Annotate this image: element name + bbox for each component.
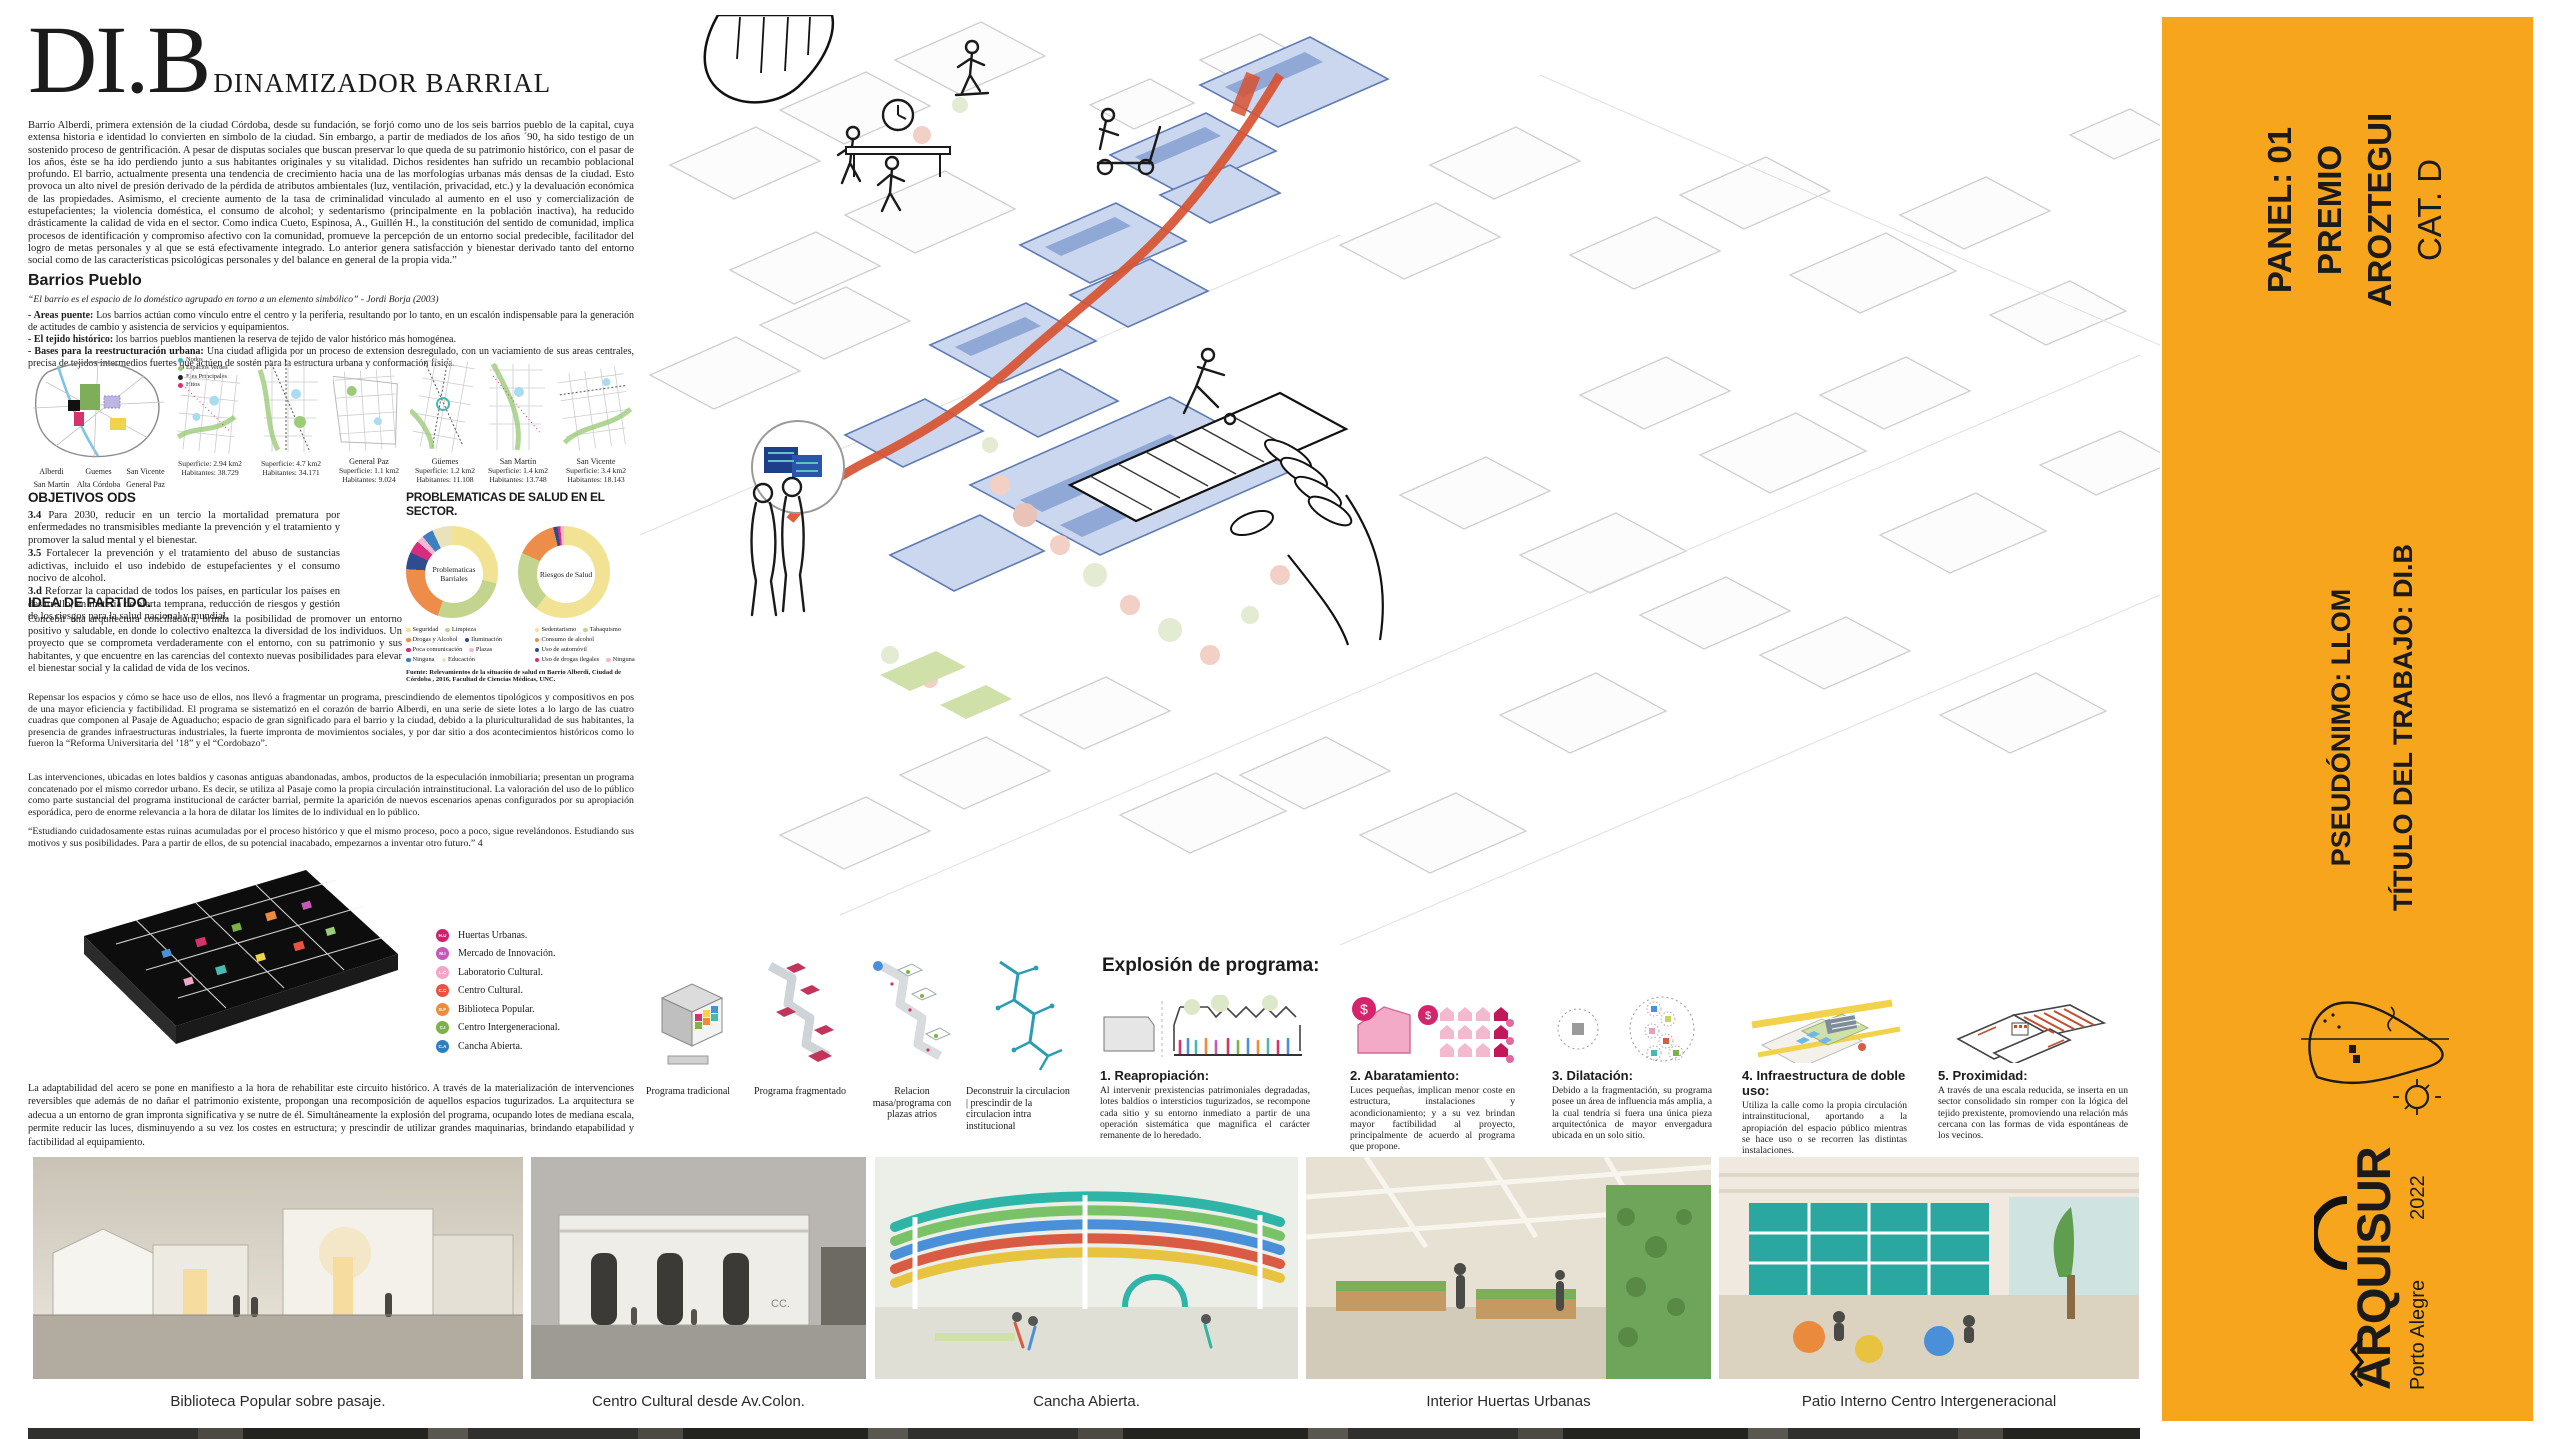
- district-map-thumb: General PazSuperficie: 1.1 km2Habitantes…: [333, 366, 405, 484]
- explosion-item: $ $ 2. Abaratamiento: Luces pequeñas, im…: [1350, 995, 1515, 1153]
- panel-number: PANEL: 01: [2255, 110, 2305, 310]
- svg-text:$: $: [1360, 1001, 1368, 1017]
- explosion-item-text: Utiliza la calle como la propia circulac…: [1742, 1100, 1907, 1156]
- premio-label: PREMIO: [2305, 110, 2355, 310]
- explosion-item-title: 3. Dilatación:: [1552, 1068, 1712, 1083]
- render-huertas: Interior Huertas Urbanas: [1306, 1157, 1711, 1410]
- diagram-programa-fragmentado: [752, 960, 852, 1072]
- program-legend: H.UHuertas Urbanas. M.IMercado de Innova…: [436, 926, 560, 1056]
- diagram-deconstruir-circulacion: [970, 958, 1070, 1074]
- district-names: Alberdi Guemes San Vicente San Martín Al…: [28, 465, 169, 491]
- district-map-thumb: Superficie: 4.7 km2Habitantes: 34.171: [256, 358, 326, 477]
- legend-badge: L.C: [436, 966, 449, 979]
- explosion-item: 5. Proximidad: A través de una escala re…: [1938, 995, 2128, 1141]
- photo-caption: Biblioteca Popular sobre pasaje.: [33, 1393, 523, 1410]
- bullet-text: Los barrios actúan como vínculo entre el…: [28, 310, 634, 333]
- legend-badge: H.U: [436, 929, 449, 942]
- district-map-thumb: San MartínSuperficie: 1.4 km2Habitantes:…: [483, 362, 553, 484]
- idea-paragraph-1: Concebir una arquitectura conciliadora, …: [28, 614, 402, 675]
- ods-heading: OBJETIVOS ODS: [28, 490, 340, 505]
- mountain-zigzag-icon: [2350, 1328, 2364, 1388]
- aroztegui-label: AROZTEGUI: [2355, 110, 2405, 310]
- explosion-item-text: Debido a la fragmentación, su programa p…: [1552, 1085, 1712, 1141]
- donut-charts: Problematicas Barriales Riesgos de Salud: [406, 526, 646, 618]
- barrios-pueblo-heading: Barrios Pueblo: [28, 272, 142, 290]
- diagram-plazas-atrios: [862, 960, 962, 1072]
- donut-center-label: Problematicas Barriales: [427, 565, 481, 583]
- masterplan-model-thumbnail: [66, 858, 406, 1088]
- axonometric-illustration: [640, 15, 2160, 953]
- explosion-item-title: 5. Proximidad:: [1938, 1068, 2128, 1083]
- legend-badge: C.A: [436, 1040, 449, 1053]
- render-cancha: Cancha Abierta.: [875, 1157, 1298, 1410]
- dilatacion-icon: [1552, 995, 1712, 1063]
- arch-icon: [2314, 1194, 2348, 1272]
- title-block: DI.B DINAMIZADOR BARRIAL: [28, 20, 551, 100]
- svg-text:$: $: [1425, 1010, 1431, 1022]
- photo-caption: Patio Interno Centro Intergeneracional: [1719, 1393, 2139, 1410]
- city-map-figure: [28, 358, 169, 460]
- titulo-label: TÍTULO DEL TRABAJO: DI.B: [2372, 530, 2434, 925]
- diagram-caption: Programa tradicional: [640, 1086, 736, 1098]
- donut-problematicas: Problematicas Barriales: [406, 526, 498, 618]
- page-title: DI.B: [28, 6, 209, 113]
- left-column: DI.B DINAMIZADOR BARRIAL Barrio Alberdi,…: [28, 20, 634, 1170]
- district-maps-row: Alberdi Guemes San Vicente San Martín Al…: [28, 352, 634, 492]
- intro-paragraph: Barrio Alberdi, primera extensión de la …: [28, 120, 634, 268]
- brand-block: ARQUISUR Porto Alegre 2022: [2282, 885, 2467, 1390]
- explosion-item-text: A través de una escala reducida, se inse…: [1938, 1085, 2128, 1141]
- idea-quote: “Estudiando cuidadosamente estas ruinas …: [28, 826, 634, 849]
- explosion-item: 4. Infraestructura de doble uso: Utiliza…: [1742, 995, 1907, 1156]
- donut-legend-1: Seguridad Limpieza Drogas y Alcohol Ilum…: [406, 626, 523, 664]
- host-city-label: Porto Alegre: [2407, 1280, 2430, 1390]
- idea-paragraph-2: Repensar los espacios y cómo se hace uso…: [28, 692, 634, 750]
- bullet-lead: - El tejido histórico:: [28, 334, 113, 345]
- explosion-item-title: 2. Abaratamiento:: [1350, 1068, 1515, 1083]
- district-map-thumb: GüemesSuperficie: 1.2 km2Habitantes: 11.…: [410, 356, 480, 484]
- proximidad-icon: [1938, 995, 2128, 1063]
- explosion-item-text: Luces pequeñas, implican menor coste en …: [1350, 1085, 1515, 1153]
- district-map-thumb: San VicenteSuperficie: 3.4 km2Habitantes…: [558, 364, 634, 484]
- donut-center-label: Riesgos de Salud: [540, 570, 592, 579]
- donut-source: Fuente: Relevamientos de la situación de…: [406, 669, 646, 683]
- competition-sidebar: PANEL: 01 PREMIO AROZTEGUI CAT. D PSEUDÓ…: [2162, 17, 2533, 1421]
- photo-caption: Centro Cultural desde Av.Colon.: [531, 1393, 866, 1410]
- donut-riesgos: Riesgos de Salud: [518, 526, 610, 618]
- legend-badge: M.I: [436, 947, 449, 960]
- render-patio-intergeneracional: Patio Interno Centro Intergeneracional: [1719, 1157, 2139, 1410]
- idea-paragraph-3: Las intervenciones, ubicadas en lotes ba…: [28, 772, 634, 818]
- render-photo-strip: Biblioteca Popular sobre pasaje. CC. Cen…: [0, 1157, 2160, 1427]
- donut-legend-2: Sedentarismo Tabaquismo Consumo de alcoh…: [535, 626, 646, 664]
- salud-section: PROBLEMATICAS DE SALUD EN EL SECTOR. Pro…: [406, 490, 646, 683]
- pseudonimo-label: PSEUDÓNIMO: LLOM: [2310, 530, 2372, 925]
- barrios-quote: “El barrio es el espacio de lo doméstico…: [28, 294, 439, 305]
- explosion-section: Explosión de programa: 1. Reapropiación:: [1100, 955, 2140, 1150]
- bullet-lead: - Areas puente:: [28, 310, 93, 321]
- edition-year: 2022: [2407, 1175, 2430, 1220]
- bottom-filmstrip: [28, 1428, 2140, 1439]
- diagram-caption: Programa fragmentado: [742, 1086, 858, 1098]
- district-map-thumb: Superficie: 2.94 km2Habitantes: 38.729: [175, 370, 245, 477]
- salud-heading: PROBLEMATICAS DE SALUD EN EL SECTOR.: [406, 490, 646, 518]
- explosion-item-title: 1. Reapropiación:: [1100, 1068, 1310, 1083]
- abaratamiento-icon: $ $: [1350, 995, 1515, 1063]
- competition-panel: DI.B DINAMIZADOR BARRIAL Barrio Alberdi,…: [0, 0, 2560, 1439]
- photo-caption: Interior Huertas Urbanas: [1306, 1393, 1711, 1410]
- idea-heading: IDEA DE PARTIDO.: [28, 594, 151, 610]
- diagram-caption: Relacion masa/programa con plazas atrios: [864, 1086, 960, 1121]
- panel-info-block: PANEL: 01 PREMIO AROZTEGUI CAT. D: [2255, 110, 2470, 310]
- render-biblioteca: Biblioteca Popular sobre pasaje.: [33, 1157, 523, 1410]
- bullet-text: los barrios pueblos mantienen la reserva…: [116, 334, 456, 345]
- reapropiacion-icon: [1100, 995, 1305, 1063]
- render-centro-cultural: CC. Centro Cultural desde Av.Colon.: [531, 1157, 866, 1410]
- explosion-heading: Explosión de programa:: [1102, 955, 1319, 977]
- explosion-item: 3. Dilatación: Debido a la fragmentación…: [1552, 995, 1712, 1141]
- legend-badge: C.C: [436, 984, 449, 997]
- category-label: CAT. D: [2405, 110, 2455, 310]
- svg-text:CC.: CC.: [771, 1298, 790, 1310]
- south-america-sketch-icon: [2295, 987, 2455, 1117]
- doble-uso-icon: [1742, 995, 1907, 1063]
- explosion-item: 1. Reapropiación: Al intervenir prexiste…: [1100, 995, 1310, 1141]
- explosion-item-title: 4. Infraestructura de doble uso:: [1742, 1068, 1907, 1098]
- legend-badge: B.P: [436, 1003, 449, 1016]
- hand-top: [705, 15, 833, 102]
- author-info-block: PSEUDÓNIMO: LLOM TÍTULO DEL TRABAJO: DI.…: [2310, 530, 2470, 925]
- page-subtitle: DINAMIZADOR BARRIAL: [213, 68, 551, 98]
- explosion-item-text: Al intervenir prexistencias patrimoniale…: [1100, 1085, 1310, 1141]
- diagram-programa-tradicional: [648, 964, 738, 1072]
- process-diagrams: Programa tradicional Programa fragmentad…: [640, 958, 1070, 1138]
- photo-caption: Cancha Abierta.: [875, 1393, 1298, 1410]
- arquisur-logo: ARQUISUR Porto Alegre 2022: [2320, 1147, 2430, 1390]
- acero-paragraph: La adaptabilidad del acero se pone en ma…: [28, 1082, 634, 1149]
- diagram-caption: Deconstruir la circulacion | prescindir …: [966, 1086, 1070, 1132]
- legend-badge: C.I: [436, 1021, 449, 1034]
- cordoba-city-map: Alberdi Guemes San Vicente San Martín Al…: [28, 358, 169, 491]
